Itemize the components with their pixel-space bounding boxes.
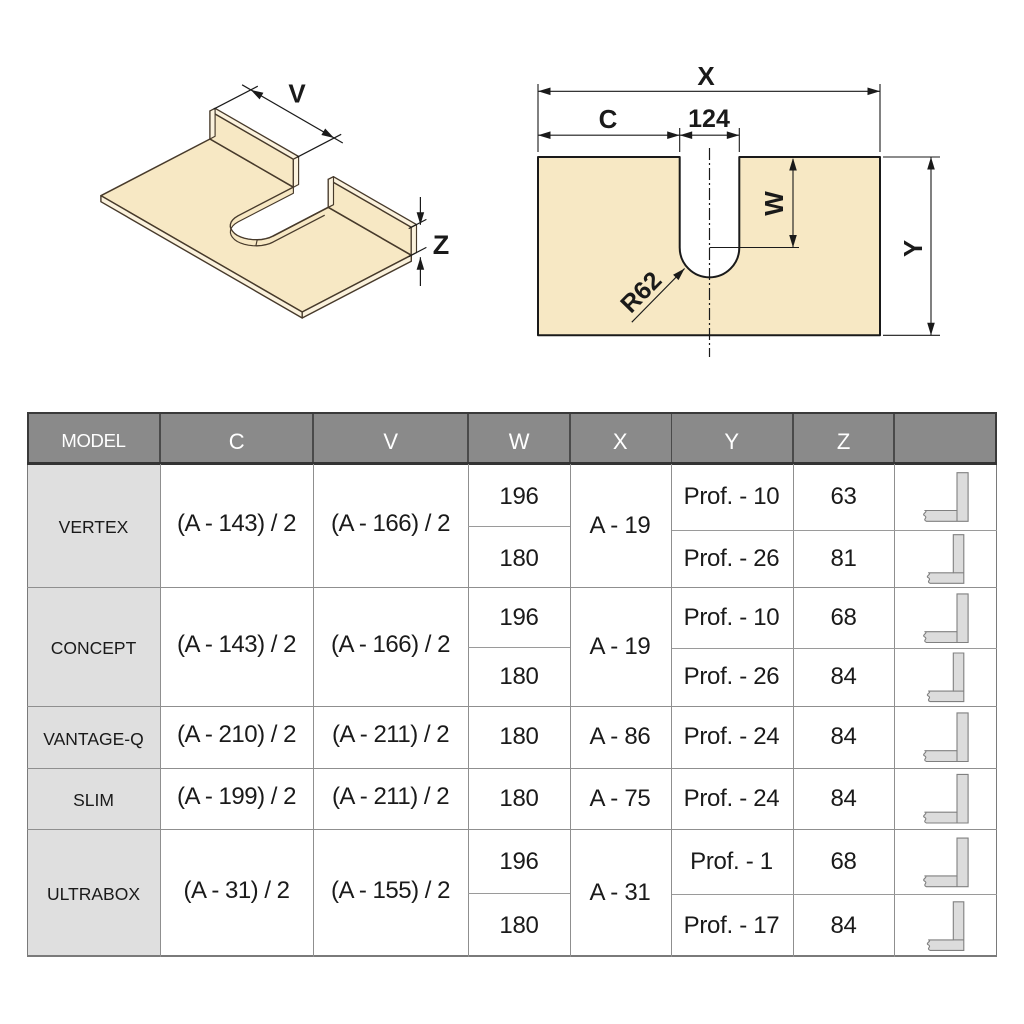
svg-text:C: C <box>599 104 618 134</box>
svg-text:Y: Y <box>898 240 928 257</box>
svg-text:Z: Z <box>433 230 450 260</box>
svg-text:X: X <box>697 61 715 91</box>
svg-text:V: V <box>288 79 306 109</box>
svg-text:124: 124 <box>688 105 730 133</box>
svg-text:W: W <box>759 191 789 216</box>
